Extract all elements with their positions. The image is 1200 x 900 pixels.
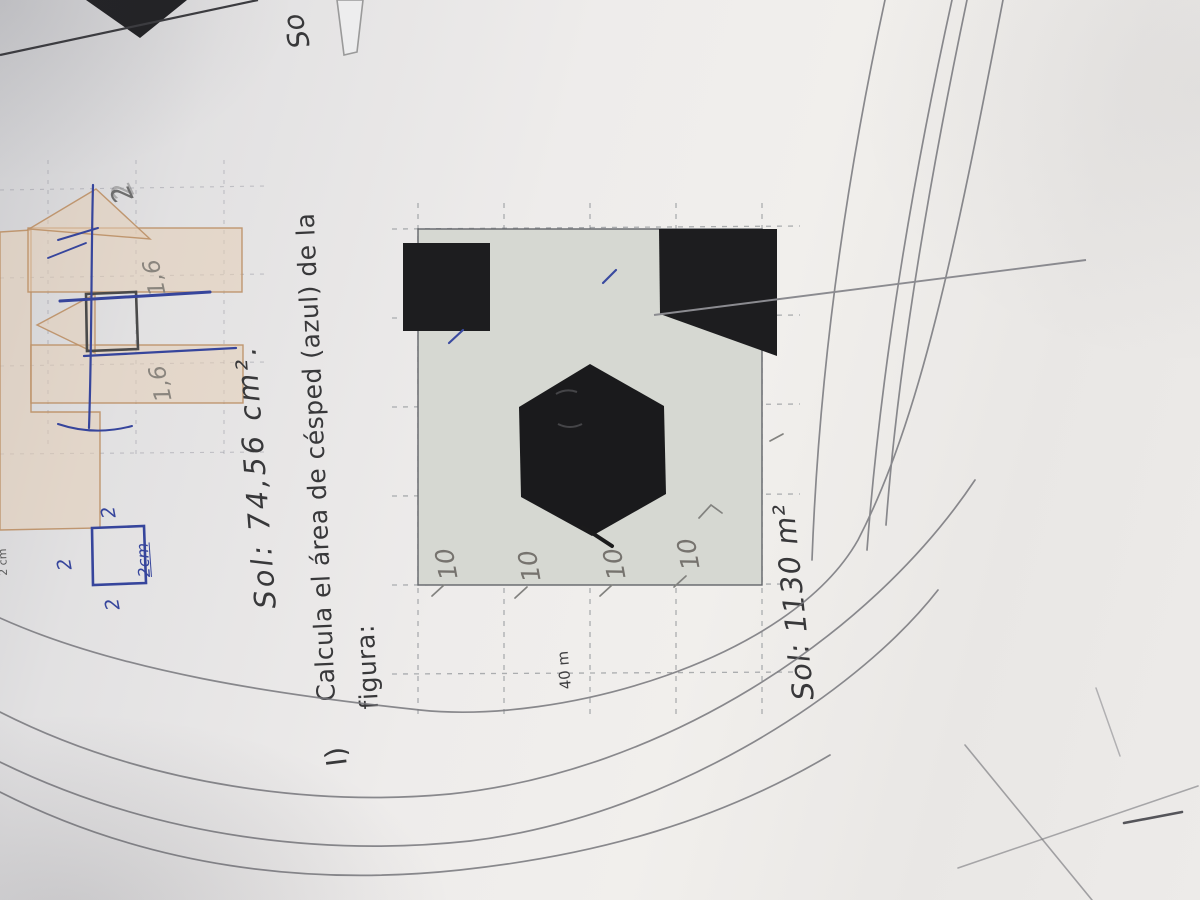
cell-label-2: 10 <box>512 538 548 584</box>
net-edge-label: 2 cm <box>0 530 11 576</box>
net-rectangle-2 <box>31 345 243 403</box>
exercise-i-answer: Sol: 1130 m² <box>767 500 821 702</box>
exercise-i-question-line2: figura: <box>350 589 385 710</box>
trapezoid-outline <box>337 0 363 55</box>
exercise-h-answer: Sol: 74,56 cm². <box>219 219 283 610</box>
blue-label-side: 2cm <box>132 519 154 578</box>
pencil-scribbles <box>958 688 1198 900</box>
dashed-grid-figure <box>392 203 800 714</box>
figure-black-square <box>403 243 490 331</box>
net-apex-label: 2 <box>99 168 140 208</box>
net-rectangle-1 <box>28 228 242 292</box>
net-rect1-label: 1,6 <box>136 244 172 298</box>
blue-label-left: 2 <box>52 547 77 572</box>
blue-label-top: 2 <box>96 495 121 520</box>
net-pencil-square <box>86 292 138 351</box>
blue-label-bottom: 2 <box>100 587 125 612</box>
cell-label-3: 10 <box>597 536 633 582</box>
figure-hexagon <box>519 364 666 536</box>
figure-side-length-label: 40 m <box>552 621 575 690</box>
figure-black-pentagon <box>659 229 777 356</box>
exercise-i-number: I) <box>317 719 354 768</box>
blue-ticks <box>449 270 616 343</box>
compass-arcs <box>0 0 1003 875</box>
figure-square <box>418 229 762 585</box>
prism-net <box>0 189 243 530</box>
net-rect2-label: 1,6 <box>142 350 178 404</box>
worksheet-drawing-layer <box>0 0 1200 900</box>
previous-figure-edge-line <box>0 0 258 55</box>
cell-label-1: 10 <box>429 536 465 582</box>
previous-answer-partial: So <box>270 0 317 52</box>
worksheet-photo: So Sol: 74,56 cm². I) Calcula el área de… <box>0 0 1200 900</box>
net-triangle-2 <box>37 294 95 353</box>
cell-label-4: 10 <box>671 526 707 572</box>
pencil-arc-layer <box>0 0 1200 900</box>
stray-pencil-line <box>654 260 1086 315</box>
soccer-figure <box>403 229 777 585</box>
previous-figure-black-corner <box>86 0 187 38</box>
exercise-i-question-line1: Calcula el área de césped (azul) de la <box>291 186 342 702</box>
net-strip <box>0 230 100 530</box>
